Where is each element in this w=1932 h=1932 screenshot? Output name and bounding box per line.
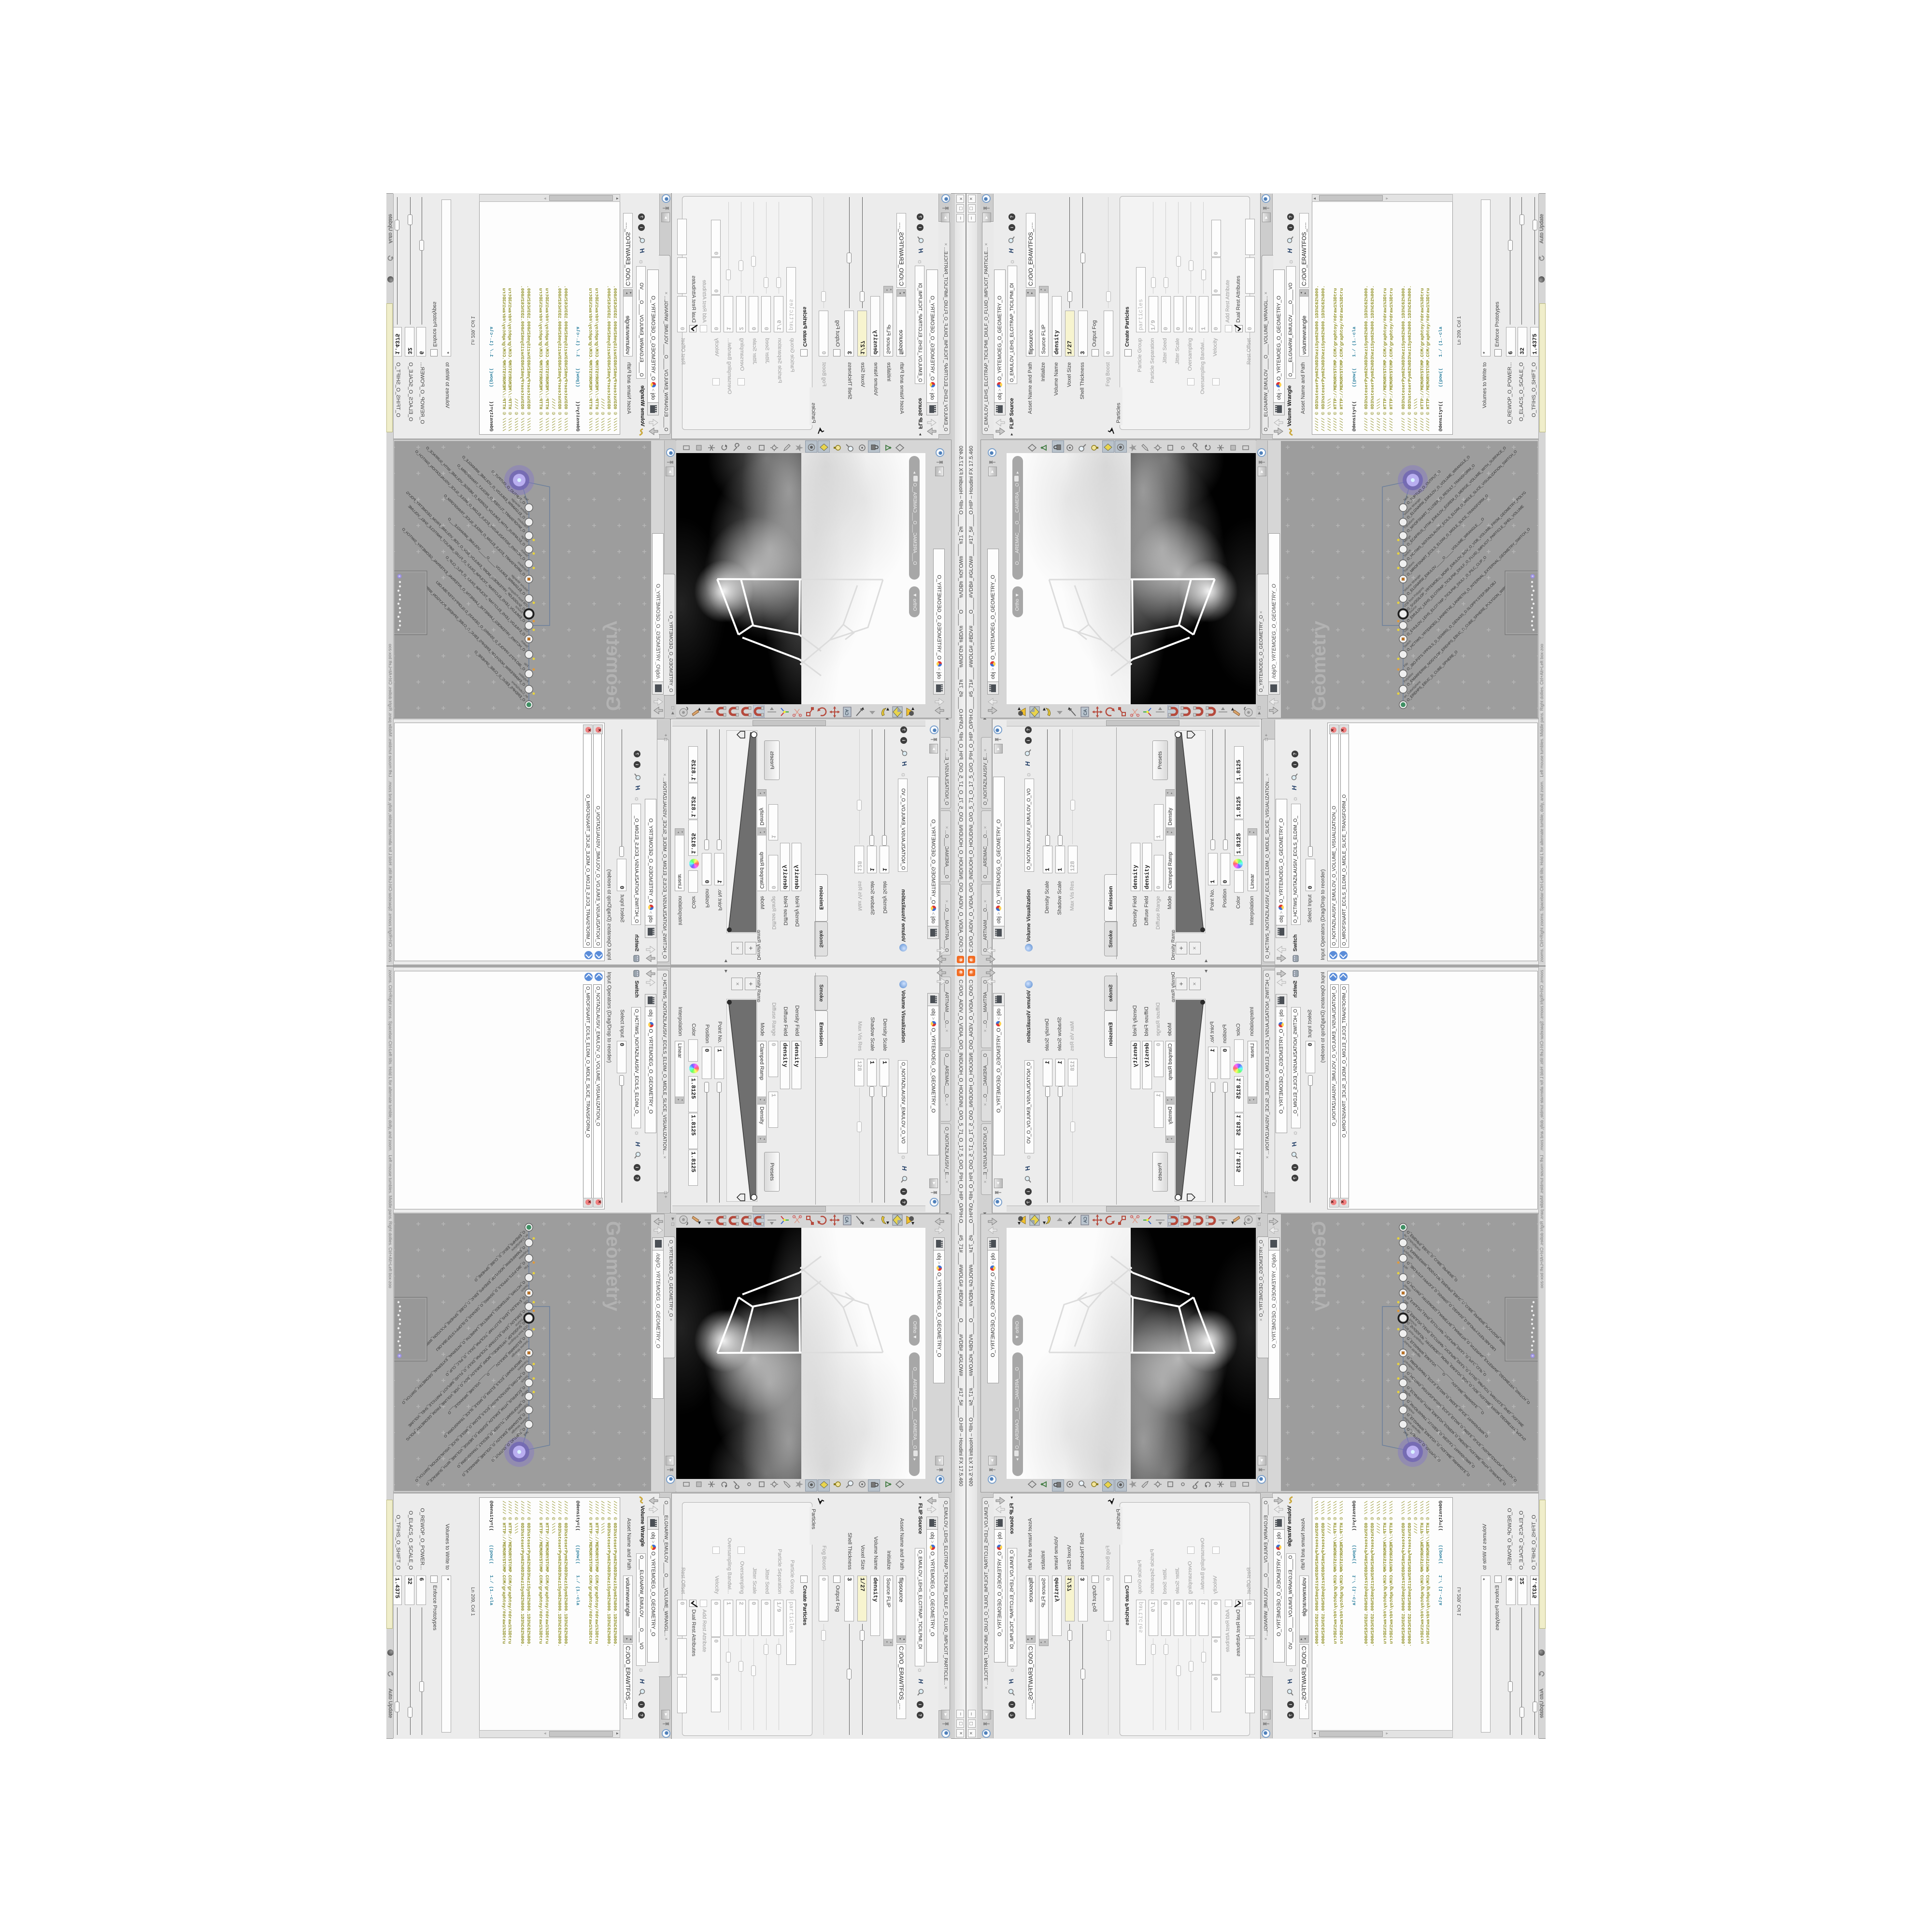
svg-text:Geometry: Geometry xyxy=(602,621,624,711)
svg-text:O_ECAFRUS_HTIW_EMULOV_EGREM_O_: O_ECAFRUS_HTIW_EMULOV_EGREM_O_MERGE_VOLU… xyxy=(1406,445,1507,547)
svg-text:Geometry: Geometry xyxy=(1308,1221,1330,1311)
svg-text:O_ECAFRUS_HTIW_EMULOV_EGREM_O_: O_ECAFRUS_HTIW_EMULOV_EGREM_O_MERGE_VOLU… xyxy=(425,1385,526,1487)
svg-text:CA: CA xyxy=(844,709,849,715)
svg-text:Geometry: Geometry xyxy=(1308,621,1330,711)
svg-text:CA: CA xyxy=(844,1217,849,1223)
svg-text:Geometry: Geometry xyxy=(602,1221,624,1311)
svg-text:CA: CA xyxy=(1083,1217,1088,1223)
svg-text:O_ECAFRUS_HTIW_EMULOV_EGREM_O_: O_ECAFRUS_HTIW_EMULOV_EGREM_O_MERGE_VOLU… xyxy=(425,445,526,547)
svg-text:O_ECAFRUS_HTIW_EMULOV_EGREM_O_: O_ECAFRUS_HTIW_EMULOV_EGREM_O_MERGE_VOLU… xyxy=(1406,1385,1507,1487)
svg-text:CA: CA xyxy=(1083,709,1088,715)
